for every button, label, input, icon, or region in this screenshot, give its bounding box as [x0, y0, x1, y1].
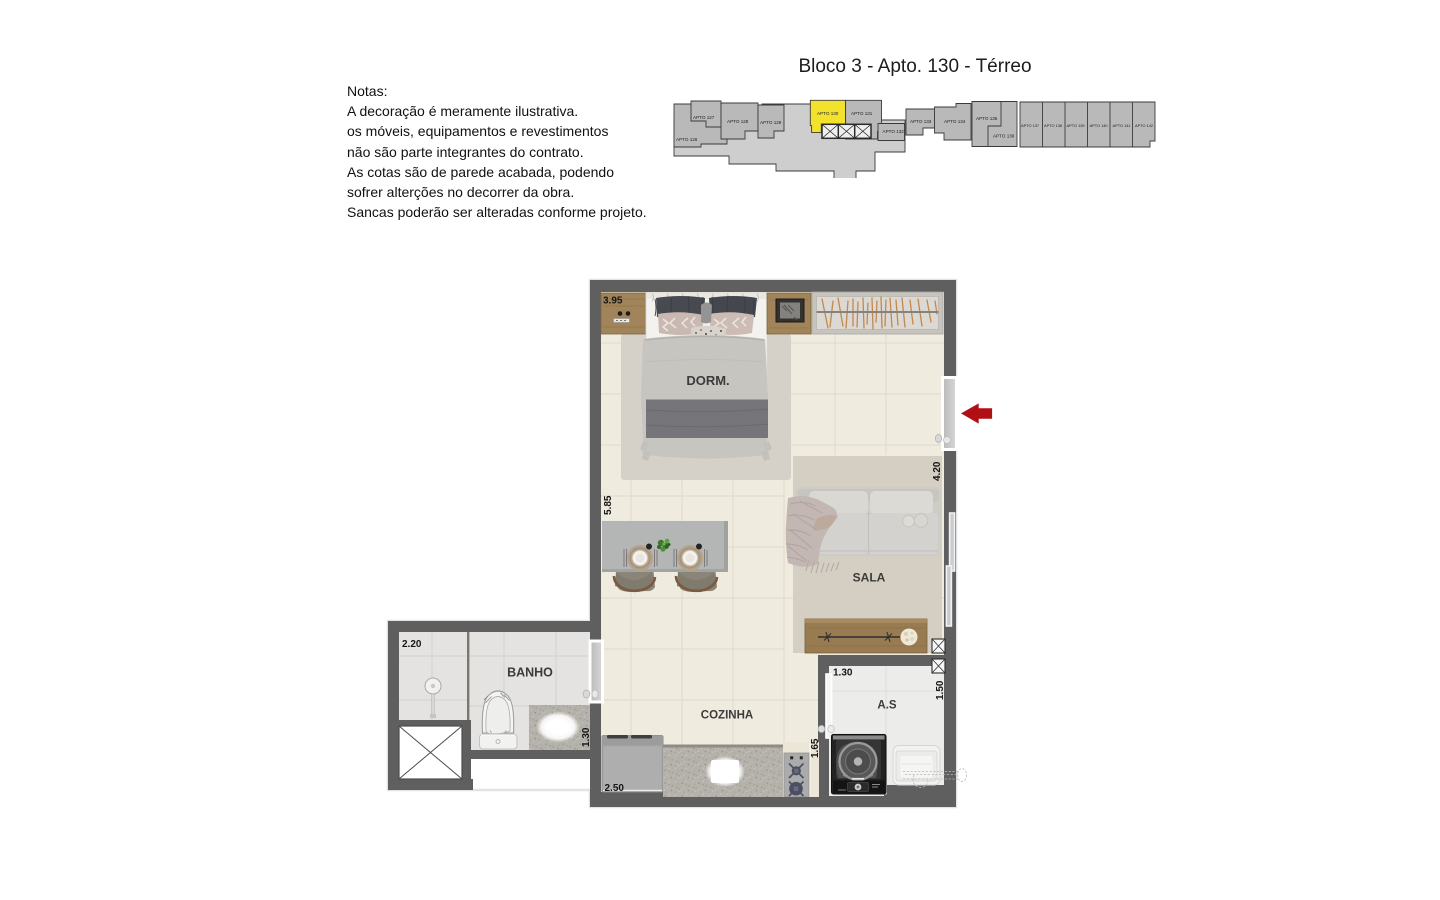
svg-text:APTO 127: APTO 127: [693, 115, 715, 120]
svg-text:APTO 137: APTO 137: [1021, 123, 1039, 128]
svg-text:1.30: 1.30: [833, 668, 853, 679]
svg-text:APTO 140: APTO 140: [1090, 123, 1109, 128]
svg-text:APTO 128: APTO 128: [727, 119, 749, 124]
svg-text:3.95: 3.95: [603, 296, 623, 307]
svg-text:APTO 126: APTO 126: [676, 137, 698, 142]
svg-text:APTO 134: APTO 134: [944, 119, 966, 124]
svg-text:DORM.: DORM.: [686, 373, 729, 388]
svg-text:APTO 131: APTO 131: [851, 111, 873, 116]
svg-text:APTO 142: APTO 142: [1135, 123, 1153, 128]
svg-text:1.50: 1.50: [935, 680, 946, 700]
svg-text:APTO 135: APTO 135: [976, 116, 998, 121]
svg-text:APTO 136: APTO 136: [993, 134, 1015, 139]
svg-text:5.85: 5.85: [603, 495, 614, 515]
svg-text:APTO 133: APTO 133: [910, 119, 932, 124]
svg-text:APTO 130: APTO 130: [817, 111, 839, 116]
svg-text:A.S: A.S: [877, 700, 897, 712]
svg-text:4.20: 4.20: [932, 461, 943, 481]
svg-text:APTO 129: APTO 129: [760, 120, 782, 125]
svg-text:1.30: 1.30: [581, 727, 592, 747]
svg-text:APTO 141: APTO 141: [1113, 123, 1131, 128]
svg-text:2.20: 2.20: [402, 639, 422, 650]
svg-text:SALA: SALA: [853, 571, 886, 585]
svg-text:APTO 132: APTO 132: [883, 129, 905, 134]
svg-text:2.50: 2.50: [605, 783, 625, 794]
svg-text:APTO 138: APTO 138: [1044, 123, 1062, 128]
svg-text:1.65: 1.65: [810, 738, 821, 758]
svg-text:BANHO: BANHO: [507, 666, 553, 680]
svg-text:COZINHA: COZINHA: [701, 710, 753, 722]
svg-text:APTO 139: APTO 139: [1067, 123, 1085, 128]
